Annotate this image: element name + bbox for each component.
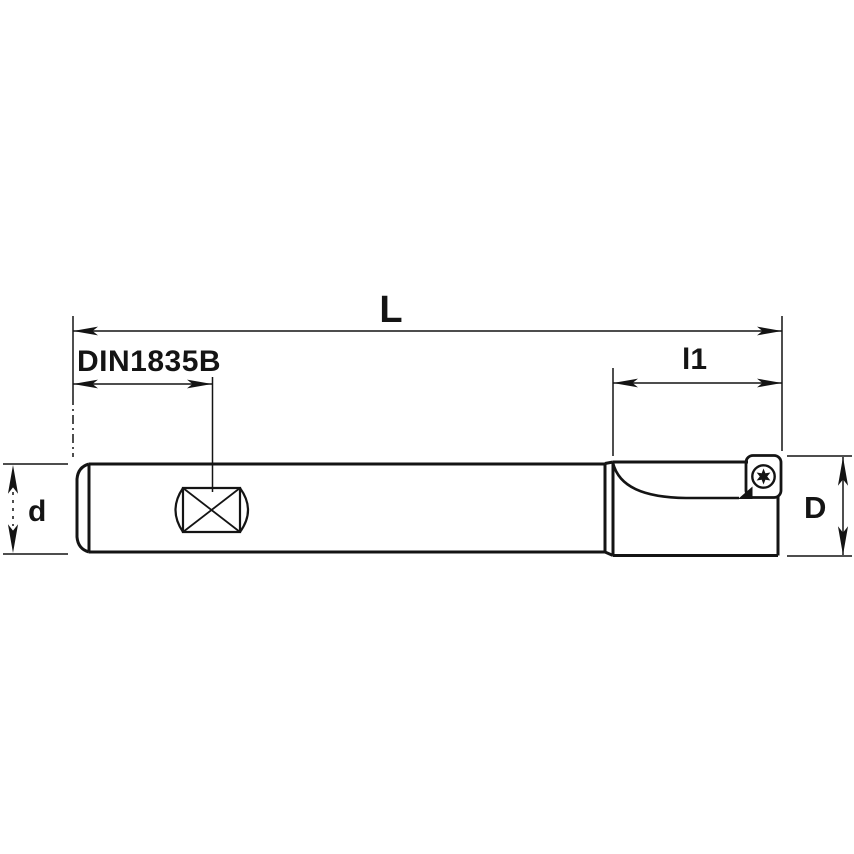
dimension-shank-diameter: d [3,464,68,554]
weldon-flat-cross [183,488,240,532]
tool-drawing-svg: L DIN1835B l1 d D [0,0,854,854]
weldon-flat-right-arc [240,488,248,532]
weldon-flat-left-arc [176,488,184,532]
dim-label-cutting-diameter: D [804,490,826,525]
arrowhead-down-icon [8,524,18,553]
shank-left-chamfer [77,464,89,552]
dimension-cutting-diameter: D [787,456,852,556]
dimension-shank-standard: DIN1835B [73,345,221,492]
dim-label-shank-diameter: d [28,495,46,528]
dimension-head-length: l1 [613,343,782,456]
dim-label-overall-length: L [379,289,402,331]
chip-flute-curve [613,463,739,498]
arrowhead-up-icon [8,465,18,494]
dim-label-shank-standard: DIN1835B [77,345,221,378]
technical-drawing-canvas: L DIN1835B l1 d D [0,0,854,854]
weldon-flat-crossed-symbol [176,488,249,532]
tool-body [77,456,781,556]
tool-shank [77,462,613,556]
torx-screw-icon [757,469,771,485]
dim-label-head-length: l1 [682,343,707,376]
